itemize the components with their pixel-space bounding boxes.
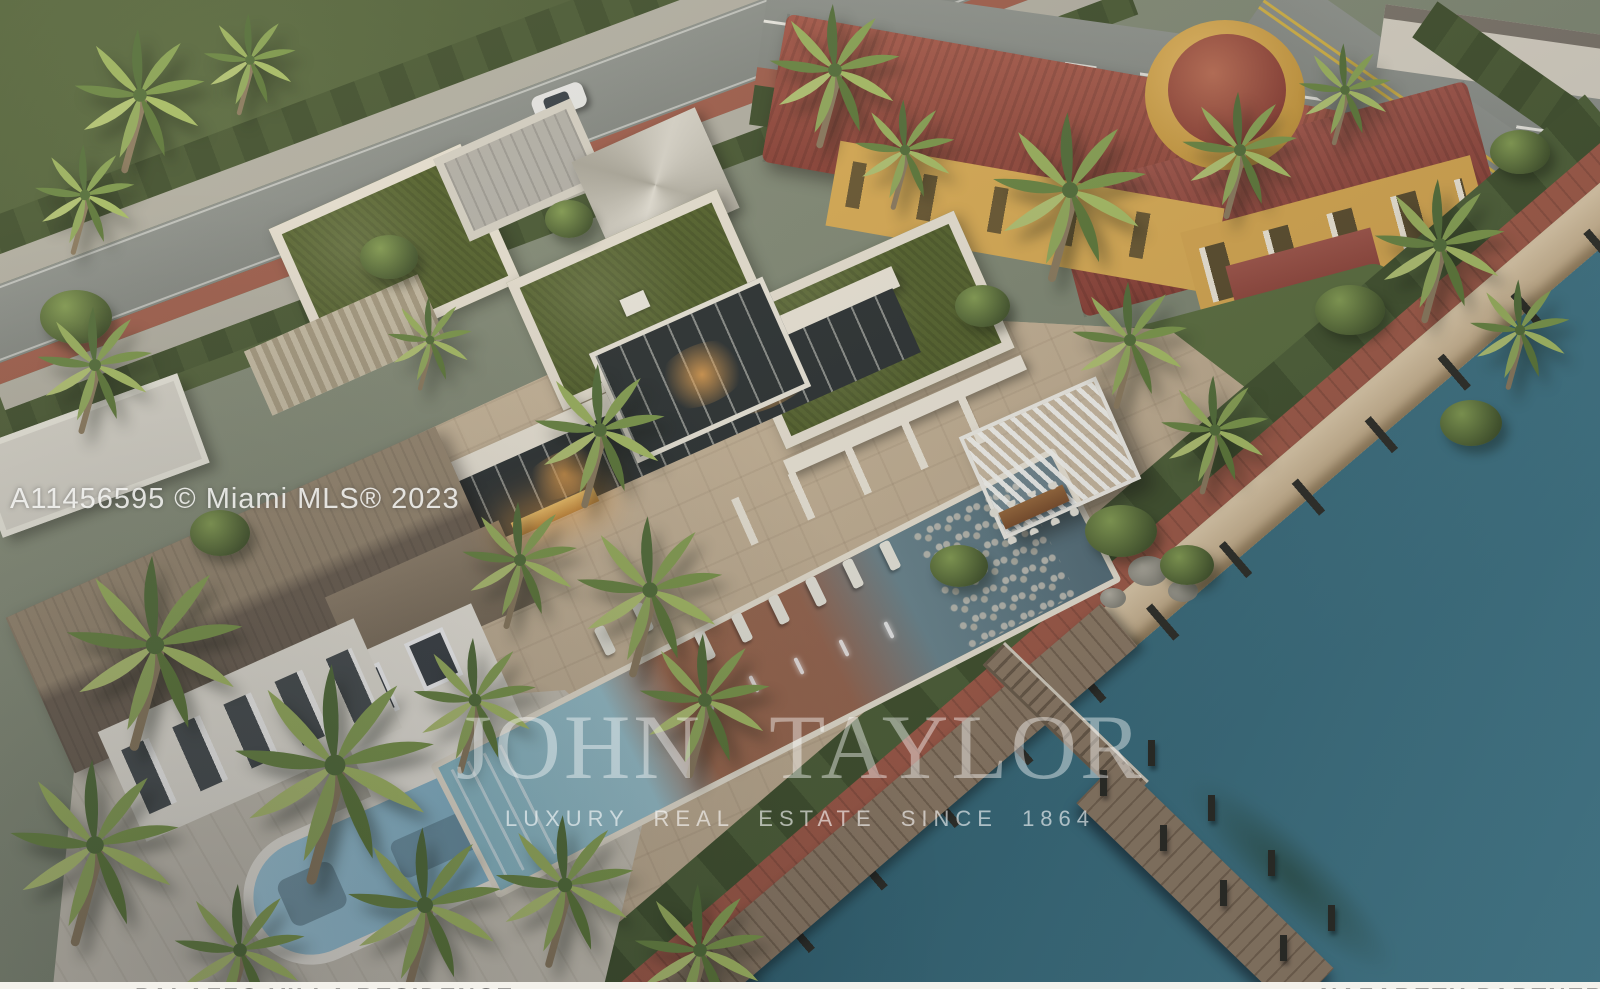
watermark-brand: JOHN TAYLOR <box>456 694 1145 800</box>
palm-tree <box>840 85 970 215</box>
shrub <box>930 545 988 587</box>
bottom-caption-bar: PALAZZO VILLA RESIDENCE NAZARETH PARTNER… <box>0 982 1600 989</box>
shrub <box>955 285 1010 327</box>
watermark-mls-id: A11456595 © Miami MLS® 2023 <box>10 483 460 516</box>
palm-tree <box>970 90 1170 290</box>
palm-tree <box>20 290 170 440</box>
shrub <box>545 200 593 238</box>
shrub <box>1160 545 1214 585</box>
palm-tree <box>615 865 785 989</box>
palm-tree <box>445 485 595 635</box>
caption-right: NAZARETH PARTNERS <box>1320 984 1600 989</box>
palm-tree <box>1285 30 1405 150</box>
aerial-photo: A11456595 © Miami MLS® 2023 JOHN TAYLOR … <box>0 0 1600 989</box>
palm-tree <box>155 865 325 989</box>
caption-left: PALAZZO VILLA RESIDENCE <box>135 984 514 989</box>
palm-tree <box>375 285 485 395</box>
shrub <box>360 235 418 279</box>
palm-tree <box>1455 265 1585 395</box>
palm-tree <box>20 130 150 260</box>
shrub <box>1440 400 1502 446</box>
watermark-tagline: LUXURY REAL ESTATE SINCE 1864 <box>505 806 1095 832</box>
shrub <box>1085 505 1157 557</box>
landscape-rock <box>1100 588 1126 608</box>
palm-tree <box>190 0 310 120</box>
palm-tree <box>1145 360 1285 500</box>
